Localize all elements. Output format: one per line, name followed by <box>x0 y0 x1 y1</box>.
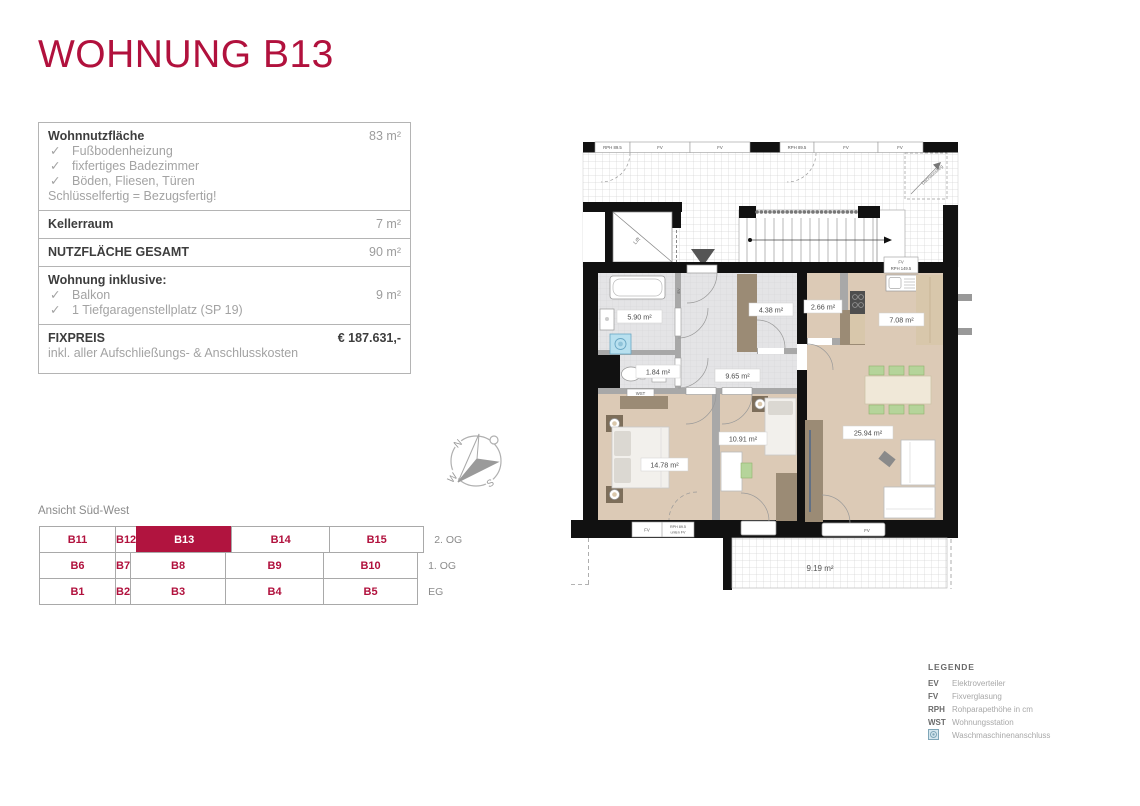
window-label-fv: FV <box>898 260 904 265</box>
grid-row-2og: B11 B12 B13 B14 B15 2. OG <box>39 527 462 553</box>
legend-desc: Waschmaschinenanschluss <box>952 731 1050 740</box>
total-area-label: NUTZFLÄCHE GESAMT <box>48 245 189 260</box>
legend-abbr: FV <box>928 692 952 701</box>
legend-abbr: EV <box>928 679 952 688</box>
feature-label: Böden, Fliesen, Türen <box>72 174 195 189</box>
feature-label: Fußbodenheizung <box>72 144 173 159</box>
room-label-living: 25.94 m² <box>854 429 883 438</box>
info-section-cellar: Kellerraum 7 m² <box>39 210 410 238</box>
room-label-kitchen: 7.08 m² <box>889 316 914 325</box>
info-section-price: FIXPREIS € 187.631,- inkl. aller Aufschl… <box>39 324 410 373</box>
feature-item: ✓fixfertiges Badezimmer <box>48 159 401 174</box>
included-item-value: 9 m² <box>376 288 401 303</box>
legend: LEGENDE EV Elektroverteiler FV Fixvergla… <box>928 662 1068 742</box>
included-item: ✓ Balkon 9 m² <box>48 288 401 303</box>
legend-desc: Rohparapethöhe in cm <box>952 705 1033 714</box>
legend-desc: Elektroverteiler <box>952 679 1005 688</box>
included-item: ✓ 1 Tiefgaragenstellplatz (SP 19) <box>48 303 401 318</box>
window-label-rph: RPH 89.5 <box>603 145 622 150</box>
view-orientation-label: Ansicht Süd-West <box>38 505 129 517</box>
room-label-storage: 4.38 m² <box>759 306 784 315</box>
ev-label: EV <box>676 288 681 294</box>
floor-plan: RPH 89.5 FV FV RPH 89.5 FV FV Dachaussti… <box>566 131 976 611</box>
grid-row-eg: B1 B2 B3 B4 B5 EG <box>39 579 462 605</box>
legend-item-rph: RPH Rohparapethöhe in cm <box>928 703 1068 716</box>
turnkey-note: Schlüsselfertig = Bezugsfertig! <box>48 189 401 204</box>
check-icon: ✓ <box>48 144 72 159</box>
window-label-fv: FV <box>843 145 849 150</box>
unit-cell-b11[interactable]: B11 <box>39 526 116 553</box>
window-label-fv: FV <box>657 145 663 150</box>
info-section-total: NUTZFLÄCHE GESAMT 90 m² <box>39 238 410 266</box>
included-item-label: Balkon <box>72 288 110 303</box>
price-label: FIXPREIS <box>48 331 105 346</box>
legend-desc: Fixverglasung <box>952 692 1002 701</box>
wst-label: WST <box>636 391 646 396</box>
room-label-bedroom1: 14.78 m² <box>650 461 679 470</box>
unit-cell-b15[interactable]: B15 <box>329 526 424 553</box>
unit-selector-grid: B11 B12 B13 B14 B15 2. OG B6 B7 B8 B9 B1… <box>39 527 462 605</box>
unit-cell-b6[interactable]: B6 <box>39 552 116 579</box>
window-label-fv: FV <box>644 528 650 533</box>
compass-icon: N S W <box>446 424 508 496</box>
cellar-value: 7 m² <box>376 217 401 232</box>
legend-abbr: RPH <box>928 705 952 714</box>
room-label-bathroom: 5.90 m² <box>627 313 652 322</box>
legend-desc: Wohnungsstation <box>952 718 1014 727</box>
window-label-fv: FV <box>717 145 723 150</box>
unit-cell-b1[interactable]: B1 <box>39 578 116 605</box>
floor-label-2og: 2. OG <box>434 527 462 553</box>
compass-south-label: S <box>485 477 497 490</box>
unit-cell-b5[interactable]: B5 <box>323 578 418 605</box>
unit-cell-b3[interactable]: B3 <box>130 578 226 605</box>
feature-item: ✓Fußbodenheizung <box>48 144 401 159</box>
legend-item-ev: EV Elektroverteiler <box>928 677 1068 690</box>
compass-west-label: W <box>446 471 461 486</box>
window-label-rph: RPH 89.5 <box>670 525 686 529</box>
living-area-value: 83 m² <box>369 129 401 144</box>
unit-cell-b10[interactable]: B10 <box>323 552 418 579</box>
total-area-value: 90 m² <box>369 245 401 260</box>
floor-label-1og: 1. OG <box>428 553 456 579</box>
washing-machine-icon <box>928 729 939 740</box>
page-title: WOHNUNG B13 <box>38 33 334 77</box>
info-box: Wohnnutzfläche 83 m² ✓Fußbodenheizung ✓f… <box>38 122 411 374</box>
room-label-wc: 1.84 m² <box>646 368 671 377</box>
info-section-living-area: Wohnnutzfläche 83 m² ✓Fußbodenheizung ✓f… <box>39 123 410 210</box>
floor-label-eg: EG <box>428 579 443 605</box>
legend-item-fv: FV Fixverglasung <box>928 690 1068 703</box>
price-value: € 187.631,- <box>338 331 401 346</box>
unit-cell-b7[interactable]: B7 <box>115 552 131 579</box>
room-label-balcony: 9.19 m² <box>806 564 833 573</box>
feature-item: ✓Böden, Fliesen, Türen <box>48 174 401 189</box>
window-label-rph: RPH 89.5 <box>788 145 807 150</box>
check-icon: ✓ <box>48 159 72 174</box>
unit-cell-b12[interactable]: B12 <box>115 526 137 553</box>
check-icon: ✓ <box>48 174 72 189</box>
unit-cell-b2[interactable]: B2 <box>115 578 131 605</box>
grid-row-1og: B6 B7 B8 B9 B10 1. OG <box>39 553 462 579</box>
legend-title: LEGENDE <box>928 662 1068 672</box>
unit-cell-b9[interactable]: B9 <box>225 552 324 579</box>
unit-cell-b14[interactable]: B14 <box>231 526 330 553</box>
legend-item-washer: Waschmaschinenanschluss <box>928 729 1068 742</box>
info-section-included: Wohnung inklusive: ✓ Balkon 9 m² ✓ 1 Tie… <box>39 266 410 324</box>
window-label-fv: FV <box>897 145 903 150</box>
unit-cell-b13-selected[interactable]: B13 <box>136 526 232 553</box>
included-item-label: 1 Tiefgaragenstellplatz (SP 19) <box>72 303 243 318</box>
included-label: Wohnung inklusive: <box>48 273 167 288</box>
window-label-unten-fv: unten FV <box>671 531 687 535</box>
check-icon: ✓ <box>48 288 72 303</box>
window-label-rph-149: RPH 149.5 <box>891 266 912 271</box>
check-icon: ✓ <box>48 303 72 318</box>
price-note: inkl. aller Aufschließungs- & Anschlussk… <box>48 346 401 361</box>
washing-machine-icon <box>610 334 631 354</box>
feature-label: fixfertiges Badezimmer <box>72 159 199 174</box>
unit-cell-b8[interactable]: B8 <box>130 552 226 579</box>
window-label-fv: FV <box>864 528 870 533</box>
cellar-label: Kellerraum <box>48 217 113 232</box>
room-label-bedroom2: 10.91 m² <box>729 435 758 444</box>
room-label-pantry: 2.66 m² <box>811 303 836 312</box>
room-label-hall: 9.65 m² <box>725 372 750 381</box>
unit-cell-b4[interactable]: B4 <box>225 578 324 605</box>
living-area-label: Wohnnutzfläche <box>48 129 144 144</box>
